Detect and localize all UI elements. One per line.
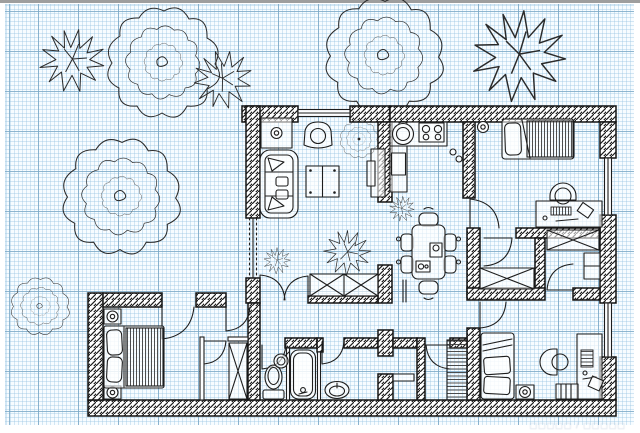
door-arc [426,345,450,369]
decor-dot [450,149,456,155]
closet-room [229,343,247,399]
single-bed [502,119,574,159]
bookshelf [556,384,578,399]
laundry-nook [393,340,467,400]
french-door-left [260,275,285,300]
kitchen [390,122,462,193]
leaf-bush-icon [35,23,110,98]
scribble-tree-icon [108,8,220,117]
bath-partition [318,352,321,400]
walk-in-closet-left [480,268,534,289]
window [605,303,612,357]
armchair [304,122,332,148]
coffee-table [306,166,339,197]
bedroom-top-right [478,119,603,227]
door-arc [162,307,194,339]
wc [263,352,289,399]
door-arc [470,199,499,228]
door-arc [204,341,226,364]
door-arc [226,307,250,331]
wc-partition [287,348,290,400]
living-room [260,118,385,218]
keyboard-icon [551,207,571,215]
window [298,110,350,117]
floor-plan-svg [0,0,640,433]
hall-partition [403,280,406,302]
nightstand [104,309,121,324]
sliding-glass-door [250,218,257,278]
slatted-cabinet [447,340,467,400]
door-arc [322,342,344,364]
floor-plan-screenshot: □□□□□ / □□□□□ [0,0,640,433]
watermark: □□□□□ / □□□□□ [530,421,626,430]
keyboard-icon [581,350,593,367]
desk [536,201,602,227]
round-basin [274,352,289,368]
closet-room-wall [200,337,204,400]
potted-plant-icon [264,248,290,274]
scribble-tree-icon [326,0,443,113]
toilet [263,365,284,399]
leaf-bush-icon [470,6,570,106]
decor-dot [456,156,462,162]
leaf-bush-icon [188,44,259,115]
scribble-tree-icon [11,278,69,335]
oval-basin [325,382,349,399]
door-arc [547,264,573,290]
stove [419,123,444,142]
stool-with-lamp [516,385,534,399]
double-bed [104,326,164,388]
bedroom-bottom-right [481,333,604,399]
shelf-counter [393,374,414,381]
bathtub [291,350,316,399]
door-arc [484,238,512,266]
lamp-icon [478,122,489,133]
scribble-tree-icon [63,139,180,254]
sofa [260,150,298,218]
french-door-right [284,276,308,300]
lamp-icon [271,128,282,139]
single-bed [481,333,514,399]
office-chair [540,349,568,375]
window [605,158,612,215]
tv-cabinet [367,149,385,197]
closet-room-wall [228,337,248,341]
sideboard [310,274,378,296]
fridge [392,153,406,175]
door-arc [480,302,506,328]
